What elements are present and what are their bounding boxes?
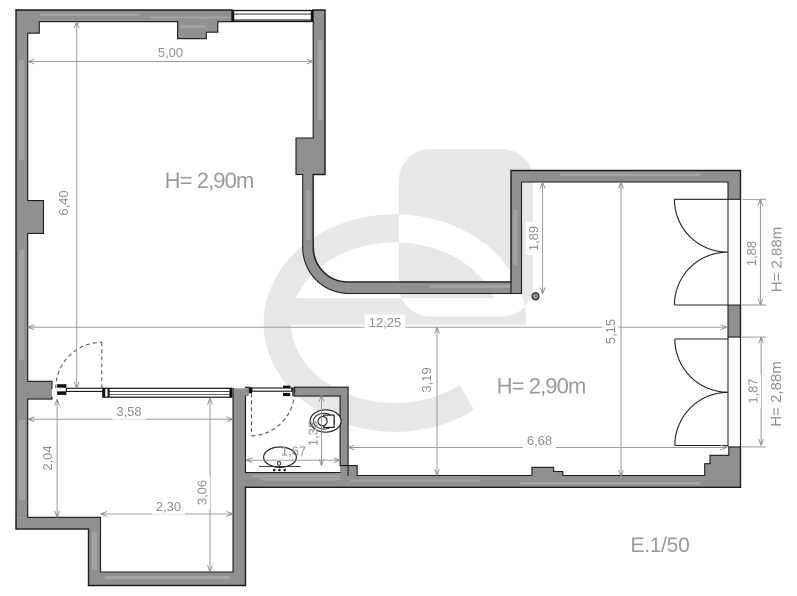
svg-text:6,68: 6,68	[527, 433, 552, 448]
svg-text:1,67: 1,67	[281, 444, 306, 459]
svg-text:2,30: 2,30	[156, 499, 181, 514]
svg-text:5,00: 5,00	[158, 45, 183, 60]
svg-text:12,25: 12,25	[369, 315, 402, 330]
svg-text:1,38: 1,38	[306, 421, 321, 446]
svg-text:3,06: 3,06	[195, 480, 210, 505]
svg-text:H= 2,88m: H= 2,88m	[768, 361, 785, 426]
svg-text:1,87: 1,87	[746, 378, 761, 403]
svg-text:H= 2,90m: H= 2,90m	[165, 168, 254, 193]
svg-text:H= 2,88m: H= 2,88m	[769, 227, 786, 292]
svg-text:E.1/50: E.1/50	[631, 534, 690, 557]
svg-text:5,15: 5,15	[603, 319, 618, 344]
svg-text:6,40: 6,40	[56, 190, 71, 215]
svg-text:2,04: 2,04	[40, 445, 55, 470]
svg-text:3,58: 3,58	[116, 404, 141, 419]
svg-text:3,19: 3,19	[419, 367, 434, 392]
svg-text:1,88: 1,88	[744, 241, 759, 266]
svg-text:1,89: 1,89	[526, 226, 541, 251]
svg-text:H= 2,90m: H= 2,90m	[497, 373, 586, 398]
